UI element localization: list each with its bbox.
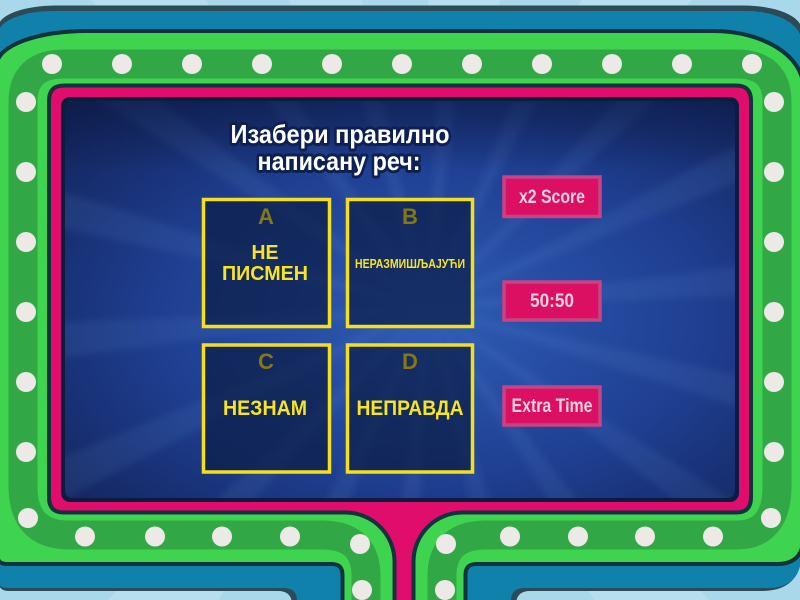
svg-text:Extra Time: Extra Time — [512, 396, 593, 417]
svg-text:D: D — [402, 349, 418, 374]
svg-text:НЕ: НЕ — [252, 242, 279, 264]
svg-text:B: B — [402, 204, 418, 229]
svg-text:x2 Score: x2 Score — [519, 187, 585, 208]
svg-text:НЕПРАВДА: НЕПРАВДА — [357, 397, 464, 420]
svg-text:50:50: 50:50 — [530, 291, 574, 312]
svg-text:НЕРАЗМИШЉАЈУЋИ: НЕРАЗМИШЉАЈУЋИ — [355, 256, 465, 271]
svg-text:A: A — [258, 204, 274, 229]
svg-text:Изабери правилно: Изабери правилно — [231, 119, 450, 149]
svg-text:ПИСМЕН: ПИСМЕН — [222, 263, 308, 285]
svg-text:написану реч:: написану реч: — [258, 146, 421, 176]
svg-text:НЕЗНАМ: НЕЗНАМ — [223, 397, 307, 420]
svg-text:C: C — [258, 349, 274, 374]
